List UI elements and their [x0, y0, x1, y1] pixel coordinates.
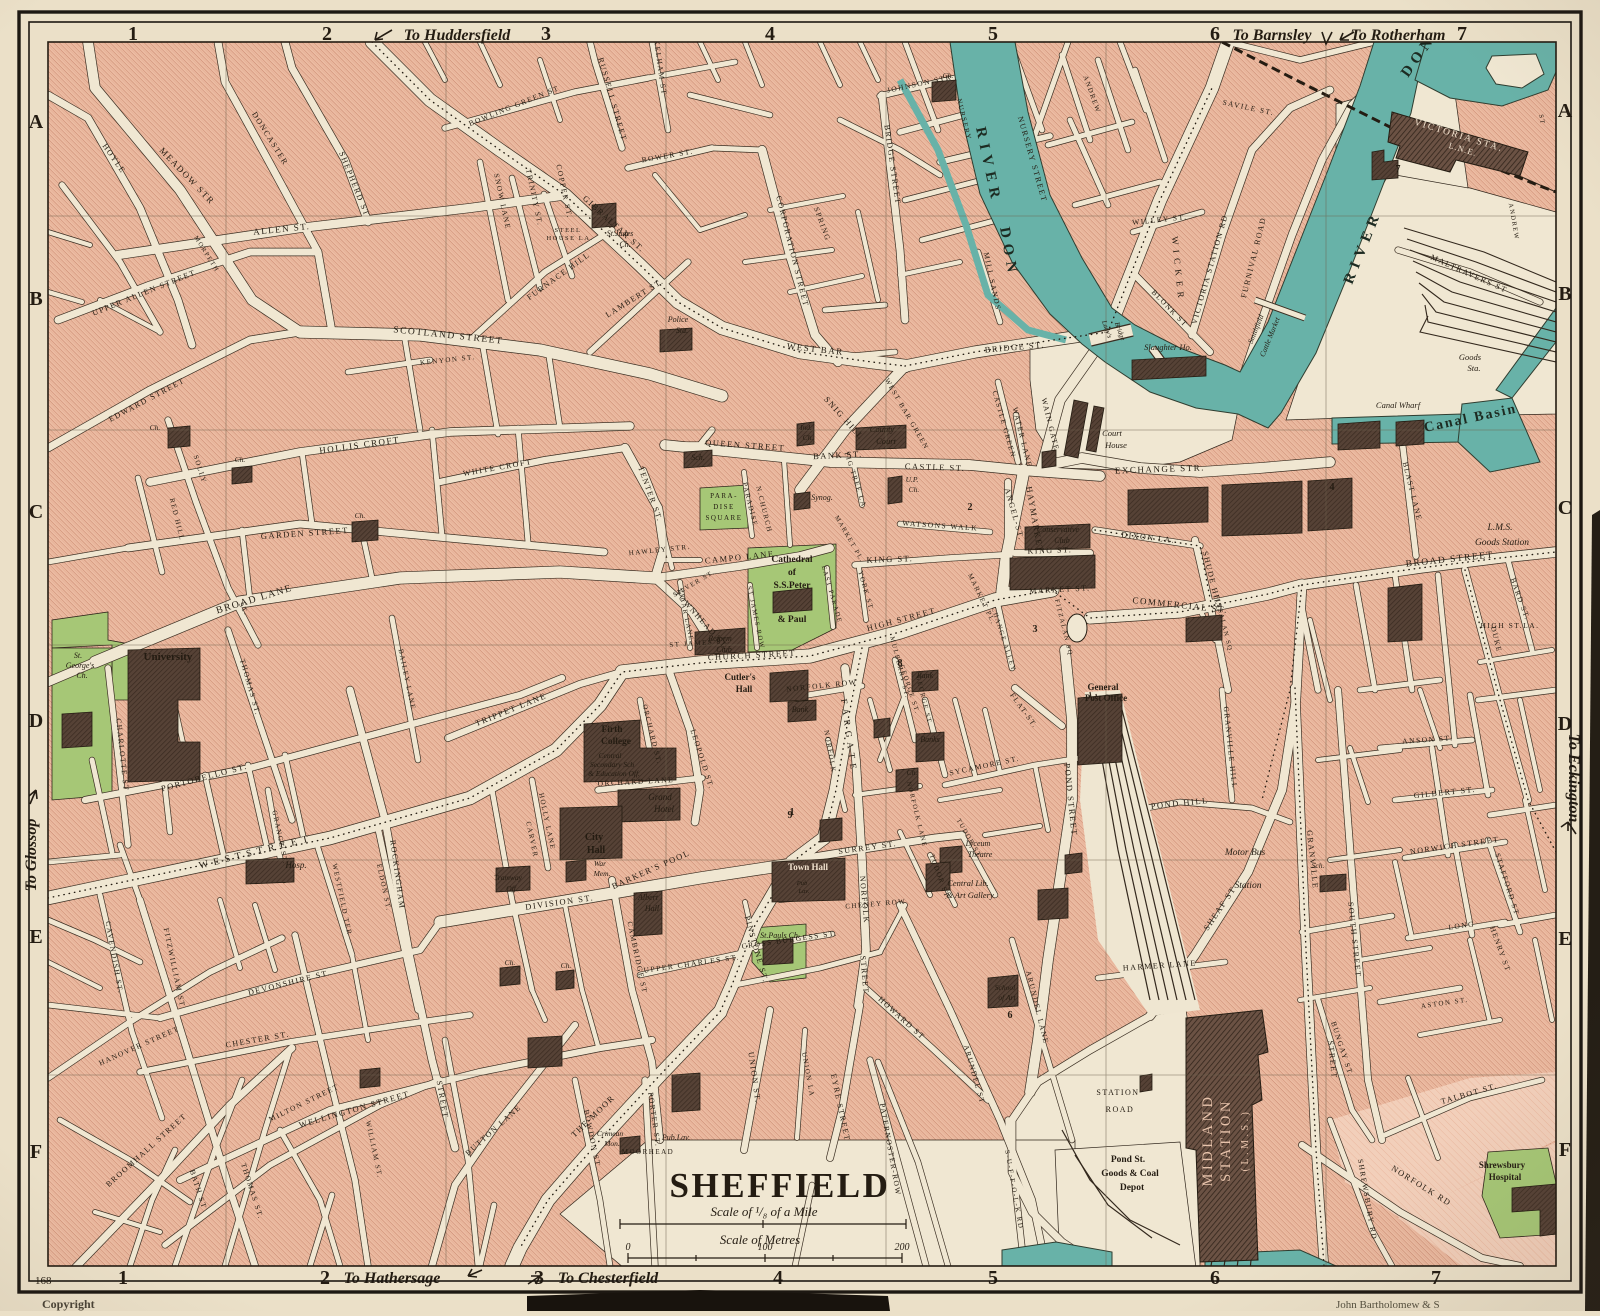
svg-text:KING ST.: KING ST.	[1027, 545, 1072, 556]
svg-text:S.S.Peter: S.S.Peter	[774, 581, 812, 591]
svg-text:Pub: Pub	[796, 880, 808, 887]
svg-text:School: School	[995, 983, 1015, 992]
svg-text:Ch.: Ch.	[76, 671, 87, 680]
svg-text:2: 2	[320, 1267, 330, 1289]
svg-text:A: A	[29, 111, 44, 133]
svg-text:John Bartholomew & S: John Bartholomew & S	[1336, 1299, 1440, 1311]
svg-text:George's: George's	[66, 661, 95, 670]
svg-text:To Huddersfield: To Huddersfield	[404, 27, 512, 44]
svg-text:STATION: STATION	[1096, 1088, 1139, 1097]
svg-text:Canal Wharf: Canal Wharf	[1376, 400, 1422, 410]
svg-text:Copyright: Copyright	[42, 1297, 95, 1311]
svg-text:7: 7	[1396, 164, 1401, 175]
svg-text:Grand: Grand	[648, 792, 672, 802]
svg-text:Sta.: Sta.	[676, 326, 688, 335]
svg-text:F: F	[30, 1141, 42, 1163]
svg-text:Hall: Hall	[644, 904, 660, 913]
svg-text:4: 4	[1330, 482, 1335, 493]
svg-text:L.M.S.: L.M.S.	[1486, 523, 1512, 533]
svg-text:Tramway: Tramway	[494, 873, 523, 882]
svg-text:PARA-: PARA-	[710, 492, 738, 500]
svg-text:Scale of ¹/₈ of a Mile: Scale of ¹/₈ of a Mile	[711, 1204, 818, 1219]
svg-text:of Art: of Art	[998, 993, 1016, 1002]
svg-text:Ch.: Ch.	[907, 768, 918, 777]
svg-text:Hall: Hall	[587, 845, 606, 856]
svg-text:To Chesterfield: To Chesterfield	[558, 1270, 659, 1287]
svg-text:St.Pauls Ch.: St.Pauls Ch.	[760, 931, 800, 940]
svg-text:Pond St.: Pond St.	[1111, 1155, 1145, 1165]
svg-text:6: 6	[1210, 23, 1220, 45]
svg-text:To Glossop: To Glossop	[23, 819, 40, 892]
svg-text:St.: St.	[74, 651, 82, 660]
svg-text:Albert: Albert	[637, 893, 659, 902]
svg-text:D: D	[29, 710, 43, 732]
svg-text:5: 5	[988, 1267, 998, 1289]
svg-text:Ch.: Ch.	[355, 511, 366, 520]
svg-text:Mon.: Mon.	[603, 1139, 620, 1148]
svg-text:Ch.: Ch.	[909, 485, 920, 494]
svg-text:Court: Court	[1102, 428, 1122, 438]
svg-text:Secondary Sch: Secondary Sch	[590, 760, 635, 769]
svg-text:2: 2	[968, 502, 973, 513]
svg-text:1: 1	[118, 1267, 128, 1289]
svg-text:Club: Club	[716, 645, 732, 654]
svg-text:Ch.: Ch.	[505, 958, 516, 967]
svg-text:Cutler's: Cutler's	[725, 672, 756, 682]
svg-text:B: B	[29, 288, 42, 310]
svg-text:4: 4	[773, 1267, 783, 1289]
svg-text:MIDLAND: MIDLAND	[1200, 1094, 1216, 1187]
svg-text:Town Hall: Town Hall	[788, 862, 828, 872]
svg-text:STATION: STATION	[1218, 1098, 1234, 1182]
svg-text:ROAD: ROAD	[1106, 1105, 1135, 1114]
svg-text:To Barnsley: To Barnsley	[1233, 27, 1313, 44]
svg-text:Sch.: Sch.	[691, 453, 705, 462]
svg-text:E: E	[1558, 928, 1571, 950]
svg-text:1: 1	[128, 23, 138, 45]
svg-text:Banks: Banks	[920, 735, 940, 744]
svg-text:F: F	[1559, 1139, 1571, 1161]
svg-text:0: 0	[626, 1242, 631, 1253]
svg-text:Mem.: Mem.	[593, 869, 611, 878]
svg-text:& Paul: & Paul	[778, 615, 807, 625]
svg-text:(L.M.S.): (L.M.S.)	[1240, 1109, 1251, 1172]
svg-text:Synog.: Synog.	[811, 493, 833, 502]
svg-text:7: 7	[1431, 1267, 1441, 1289]
svg-text:Motor Bus: Motor Bus	[1224, 848, 1266, 858]
svg-text:Club: Club	[1054, 536, 1070, 545]
svg-text:5: 5	[988, 23, 998, 45]
svg-text:Hosp.: Hosp.	[284, 860, 306, 870]
svg-text:SQUARE: SQUARE	[705, 514, 742, 522]
svg-text:Court: Court	[876, 436, 896, 446]
svg-text:Sta.: Sta.	[1468, 363, 1481, 373]
svg-text:DISE: DISE	[713, 503, 735, 511]
svg-text:War: War	[594, 859, 606, 868]
svg-text:6: 6	[1210, 1267, 1220, 1289]
svg-text:C: C	[29, 501, 43, 523]
svg-text:Goods: Goods	[1459, 352, 1482, 362]
svg-text:HIGH ST.LA.: HIGH ST.LA.	[1480, 621, 1539, 630]
svg-text:1: 1	[790, 807, 795, 818]
svg-text:6: 6	[1008, 1010, 1013, 1021]
svg-text:House: House	[1104, 440, 1127, 450]
svg-text:Conservative: Conservative	[1037, 525, 1080, 534]
svg-text:HOUSE LA.: HOUSE LA.	[546, 235, 593, 242]
svg-text:To Hathersage: To Hathersage	[344, 1270, 441, 1287]
svg-text:Ind.: Ind.	[799, 423, 812, 432]
svg-text:& Art Gallery: & Art Gallery	[946, 890, 994, 900]
svg-text:STEEL: STEEL	[555, 227, 582, 234]
svg-text:Ch.: Ch.	[235, 455, 246, 464]
svg-text:County: County	[870, 424, 895, 434]
svg-text:Ch.: Ch.	[150, 423, 161, 432]
svg-text:B: B	[1558, 283, 1571, 305]
svg-text:Bank: Bank	[792, 705, 809, 714]
svg-text:4: 4	[765, 23, 775, 45]
svg-text:Pub.Lav.: Pub.Lav.	[661, 1133, 690, 1142]
svg-text:Ch.: Ch.	[561, 961, 572, 970]
svg-text:Cathedral: Cathedral	[771, 555, 813, 565]
svg-text:Crimean: Crimean	[597, 1129, 624, 1138]
svg-text:3: 3	[541, 23, 551, 45]
svg-text:Hospital: Hospital	[1489, 1172, 1522, 1182]
svg-text:St.Judes: St.Judes	[607, 229, 633, 238]
svg-text:Police: Police	[667, 315, 689, 324]
svg-text:SHEFFIELD: SHEFFIELD	[670, 1166, 891, 1205]
svg-text:& Education Off.: & Education Off.	[588, 769, 640, 778]
svg-text:Hotel: Hotel	[653, 804, 674, 814]
svg-text:Off.: Off.	[506, 884, 518, 893]
svg-text:Slaughter Ho.: Slaughter Ho.	[1144, 342, 1192, 352]
svg-text:Central: Central	[599, 751, 622, 760]
svg-text:MOORHEAD: MOORHEAD	[622, 1148, 674, 1156]
svg-text:Goods & Coal: Goods & Coal	[1101, 1169, 1159, 1179]
svg-text:Depot: Depot	[1120, 1183, 1145, 1193]
svg-text:University: University	[144, 651, 193, 663]
svg-text:KING ST.: KING ST.	[866, 553, 913, 565]
svg-text:Ch.: Ch.	[619, 240, 630, 249]
svg-text:Goods Station: Goods Station	[1475, 538, 1529, 548]
svg-text:7: 7	[1457, 23, 1467, 45]
svg-text:2: 2	[322, 23, 332, 45]
svg-text:College: College	[601, 737, 631, 747]
svg-text:Shrewsbury: Shrewsbury	[1479, 1160, 1526, 1170]
svg-text:of: of	[788, 568, 797, 578]
svg-text:Central Lib.: Central Lib.	[947, 878, 989, 888]
svg-text:100: 100	[758, 1242, 773, 1253]
svg-text:C: C	[1558, 497, 1572, 519]
svg-text:200: 200	[895, 1242, 910, 1253]
svg-text:D: D	[1558, 713, 1572, 735]
svg-text:Station: Station	[1235, 881, 1262, 891]
svg-text:E: E	[29, 926, 42, 948]
svg-text:Firth: Firth	[601, 725, 623, 735]
svg-text:Ch.: Ch.	[943, 71, 954, 80]
svg-text:Ch.: Ch.	[803, 433, 814, 442]
svg-text:3: 3	[1033, 624, 1038, 635]
svg-text:CASTLE ST.: CASTLE ST.	[905, 461, 966, 473]
svg-text:City: City	[585, 832, 603, 843]
svg-text:General: General	[1088, 682, 1119, 692]
svg-text:To Rotherham: To Rotherham	[1351, 27, 1446, 44]
svg-text:Sch.: Sch.	[1312, 861, 1325, 870]
svg-text:U.P.: U.P.	[906, 475, 919, 484]
svg-text:Hall: Hall	[736, 684, 753, 694]
svg-text:Post Office: Post Office	[1085, 693, 1127, 703]
svg-text:Reform: Reform	[707, 634, 732, 643]
svg-text:Lav.: Lav.	[798, 888, 810, 895]
